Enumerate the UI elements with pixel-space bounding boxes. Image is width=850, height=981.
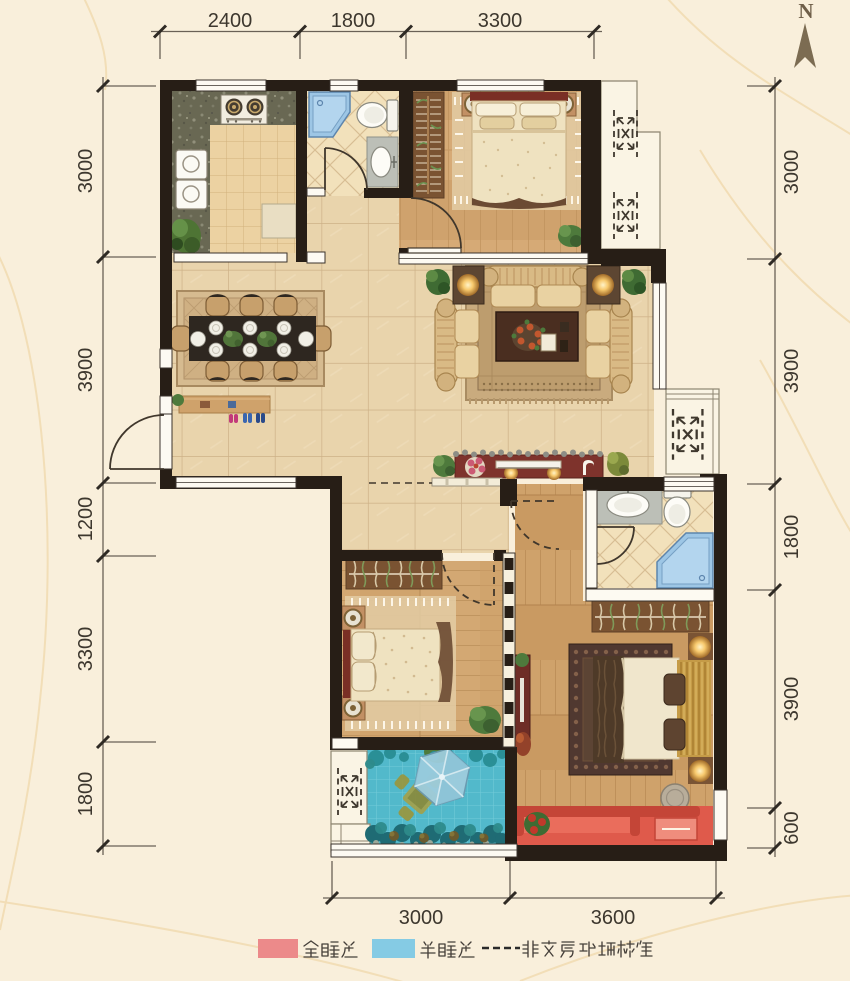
svg-text:N: N bbox=[798, 0, 813, 23]
svg-text:3000: 3000 bbox=[781, 150, 803, 195]
svg-text:3900: 3900 bbox=[75, 348, 97, 393]
svg-text:1800: 1800 bbox=[331, 10, 376, 32]
svg-text:1800: 1800 bbox=[75, 772, 97, 817]
svg-text:2400: 2400 bbox=[208, 10, 253, 32]
svg-text:3300: 3300 bbox=[478, 10, 523, 32]
svg-text:3900: 3900 bbox=[781, 677, 803, 722]
svg-text:600: 600 bbox=[781, 811, 803, 844]
svg-text:3600: 3600 bbox=[591, 907, 636, 929]
svg-text:3900: 3900 bbox=[781, 349, 803, 394]
svg-text:3000: 3000 bbox=[399, 907, 444, 929]
svg-text:1800: 1800 bbox=[781, 515, 803, 560]
svg-text:3300: 3300 bbox=[75, 627, 97, 672]
svg-text:1200: 1200 bbox=[75, 497, 97, 542]
svg-text:3000: 3000 bbox=[75, 149, 97, 194]
